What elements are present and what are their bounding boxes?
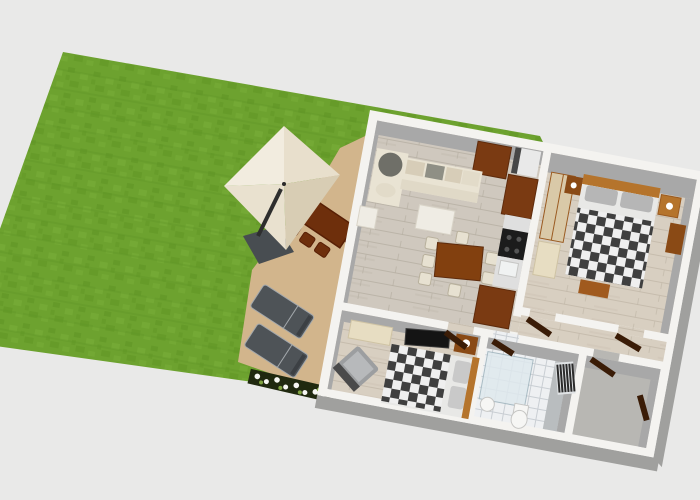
dining-chair	[418, 272, 432, 286]
kitchen-sink	[498, 260, 518, 277]
dining-table	[434, 243, 483, 281]
parasol-hub	[282, 182, 286, 186]
checkered-duvet	[381, 344, 451, 412]
wall-tv	[405, 329, 450, 348]
dining-chair	[455, 231, 469, 245]
dining-chair	[421, 254, 435, 268]
kitchen-cabinet	[473, 285, 515, 329]
house	[315, 110, 700, 472]
render-stage	[0, 0, 700, 500]
radiator	[555, 361, 575, 394]
checkered-duvet	[565, 207, 654, 288]
floorplan-3d-view	[0, 0, 700, 500]
dining-chair	[448, 283, 462, 297]
back-cushion	[444, 167, 462, 184]
side-table	[357, 206, 378, 229]
stove	[498, 228, 529, 260]
